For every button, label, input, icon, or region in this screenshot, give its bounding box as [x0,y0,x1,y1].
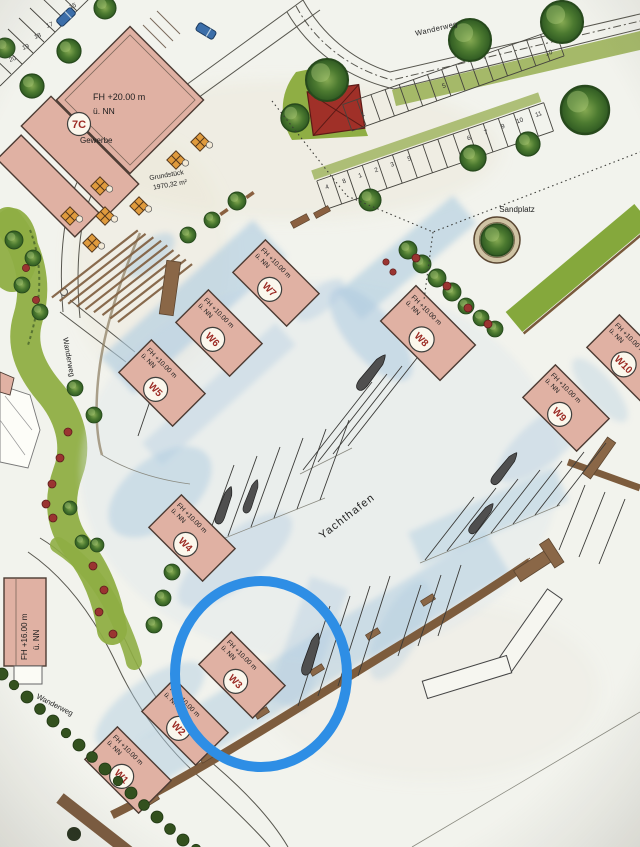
site-plan-photo: 15 17 18 19 20 1 5 10 4 8 1 2 3 5 6 7 9 … [0,0,640,847]
photo-vignette [0,0,640,847]
site-plan-map: 15 17 18 19 20 1 5 10 4 8 1 2 3 5 6 7 9 … [0,0,640,847]
